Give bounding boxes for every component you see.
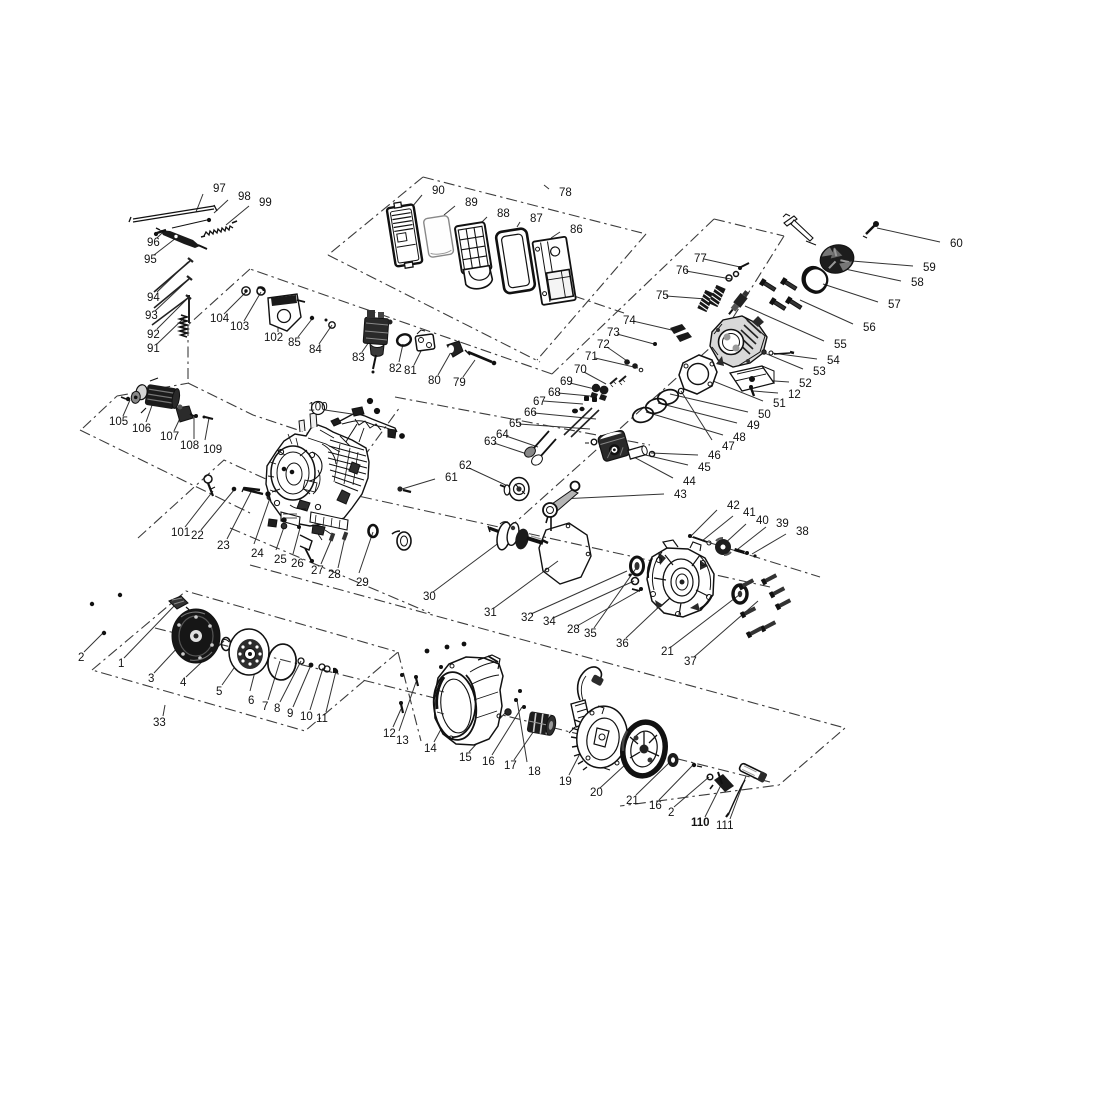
svg-text:4: 4	[180, 677, 187, 689]
svg-text:60: 60	[950, 238, 963, 250]
svg-text:63: 63	[484, 436, 497, 448]
svg-text:92: 92	[147, 329, 160, 341]
svg-text:45: 45	[698, 462, 711, 474]
svg-text:51: 51	[773, 398, 786, 410]
svg-text:101: 101	[171, 527, 190, 539]
svg-text:8: 8	[274, 703, 280, 715]
svg-text:105: 105	[109, 416, 128, 428]
svg-text:26: 26	[291, 558, 304, 570]
svg-text:33: 33	[153, 717, 166, 729]
svg-text:6: 6	[248, 695, 254, 707]
svg-text:83: 83	[352, 352, 365, 364]
svg-text:21: 21	[626, 795, 639, 807]
svg-text:86: 86	[570, 224, 583, 236]
svg-text:73: 73	[607, 327, 620, 339]
svg-text:89: 89	[465, 197, 478, 209]
svg-text:32: 32	[521, 612, 534, 624]
svg-text:12: 12	[383, 728, 396, 740]
svg-text:87: 87	[530, 213, 543, 225]
svg-text:57: 57	[888, 299, 901, 311]
svg-text:16: 16	[649, 800, 662, 812]
svg-text:17: 17	[504, 760, 517, 772]
svg-text:52: 52	[799, 378, 812, 390]
svg-text:107: 107	[160, 431, 179, 443]
svg-text:2: 2	[668, 807, 674, 819]
svg-text:43: 43	[674, 489, 687, 501]
svg-text:23: 23	[217, 540, 230, 552]
svg-text:65: 65	[509, 418, 522, 430]
svg-text:18: 18	[528, 766, 541, 778]
svg-text:74: 74	[623, 315, 636, 327]
svg-text:53: 53	[813, 366, 826, 378]
svg-text:28: 28	[567, 624, 580, 636]
svg-text:3: 3	[148, 673, 154, 685]
svg-text:27: 27	[311, 565, 324, 577]
svg-text:24: 24	[251, 548, 264, 560]
svg-text:11: 11	[316, 713, 328, 725]
svg-text:34: 34	[543, 616, 556, 628]
svg-text:80: 80	[428, 375, 441, 387]
svg-text:75: 75	[656, 290, 669, 302]
svg-text:66: 66	[524, 407, 537, 419]
svg-text:37: 37	[684, 656, 697, 668]
svg-text:104: 104	[210, 313, 230, 325]
svg-text:70: 70	[574, 364, 587, 376]
svg-text:96: 96	[147, 237, 160, 249]
svg-text:35: 35	[584, 628, 597, 640]
svg-text:56: 56	[863, 322, 876, 334]
svg-text:21: 21	[661, 646, 674, 658]
svg-text:14: 14	[424, 743, 437, 755]
svg-text:1: 1	[118, 658, 124, 670]
svg-text:48: 48	[733, 432, 746, 444]
svg-text:102: 102	[264, 332, 283, 344]
svg-text:58: 58	[911, 277, 924, 289]
svg-text:36: 36	[616, 638, 629, 650]
svg-text:50: 50	[758, 409, 771, 421]
svg-text:69: 69	[560, 376, 573, 388]
svg-text:111: 111	[716, 820, 733, 832]
svg-text:38: 38	[796, 526, 809, 538]
svg-text:54: 54	[827, 355, 840, 367]
svg-text:99: 99	[259, 197, 272, 209]
svg-text:103: 103	[230, 321, 249, 333]
svg-text:62: 62	[459, 460, 472, 472]
svg-text:12: 12	[788, 389, 801, 401]
svg-text:7: 7	[262, 701, 268, 713]
svg-text:5: 5	[216, 686, 222, 698]
svg-text:28: 28	[328, 569, 341, 581]
svg-text:78: 78	[559, 187, 572, 199]
svg-text:68: 68	[548, 387, 561, 399]
svg-text:79: 79	[453, 377, 466, 389]
svg-text:30: 30	[423, 591, 436, 603]
svg-text:91: 91	[147, 343, 160, 355]
svg-text:106: 106	[132, 423, 151, 435]
svg-text:25: 25	[274, 554, 287, 566]
svg-text:97: 97	[213, 183, 226, 195]
svg-text:15: 15	[459, 752, 472, 764]
svg-text:90: 90	[432, 185, 445, 197]
svg-text:100: 100	[308, 402, 327, 414]
svg-text:19: 19	[559, 776, 572, 788]
svg-text:22: 22	[191, 530, 204, 542]
svg-text:59: 59	[923, 262, 936, 274]
svg-text:40: 40	[756, 515, 769, 527]
svg-text:2: 2	[78, 652, 84, 664]
svg-text:29: 29	[356, 577, 369, 589]
svg-text:85: 85	[288, 337, 301, 349]
svg-text:81: 81	[404, 365, 417, 377]
svg-text:95: 95	[144, 254, 157, 266]
svg-text:93: 93	[145, 310, 158, 322]
svg-text:55: 55	[834, 339, 847, 351]
svg-text:46: 46	[708, 450, 721, 462]
svg-text:13: 13	[396, 735, 409, 747]
svg-text:47: 47	[722, 441, 735, 453]
svg-text:109: 109	[203, 444, 222, 456]
svg-text:41: 41	[743, 507, 756, 519]
svg-text:94: 94	[147, 292, 160, 304]
svg-text:84: 84	[309, 344, 322, 356]
svg-text:108: 108	[180, 440, 199, 452]
svg-text:72: 72	[597, 339, 610, 351]
svg-text:71: 71	[585, 351, 598, 363]
svg-text:16: 16	[482, 756, 495, 768]
svg-text:77: 77	[694, 253, 707, 265]
svg-text:9: 9	[287, 708, 293, 720]
svg-text:61: 61	[445, 472, 458, 484]
svg-text:110: 110	[691, 817, 710, 829]
svg-text:31: 31	[484, 607, 497, 619]
svg-text:42: 42	[727, 500, 740, 512]
svg-text:49: 49	[747, 420, 760, 432]
svg-text:82: 82	[389, 363, 402, 375]
svg-text:76: 76	[676, 265, 689, 277]
svg-text:64: 64	[496, 429, 509, 441]
svg-text:88: 88	[497, 208, 510, 220]
svg-text:98: 98	[238, 191, 251, 203]
svg-text:20: 20	[590, 787, 603, 799]
svg-text:44: 44	[683, 476, 696, 488]
svg-text:10: 10	[300, 711, 313, 723]
svg-text:39: 39	[776, 518, 789, 530]
